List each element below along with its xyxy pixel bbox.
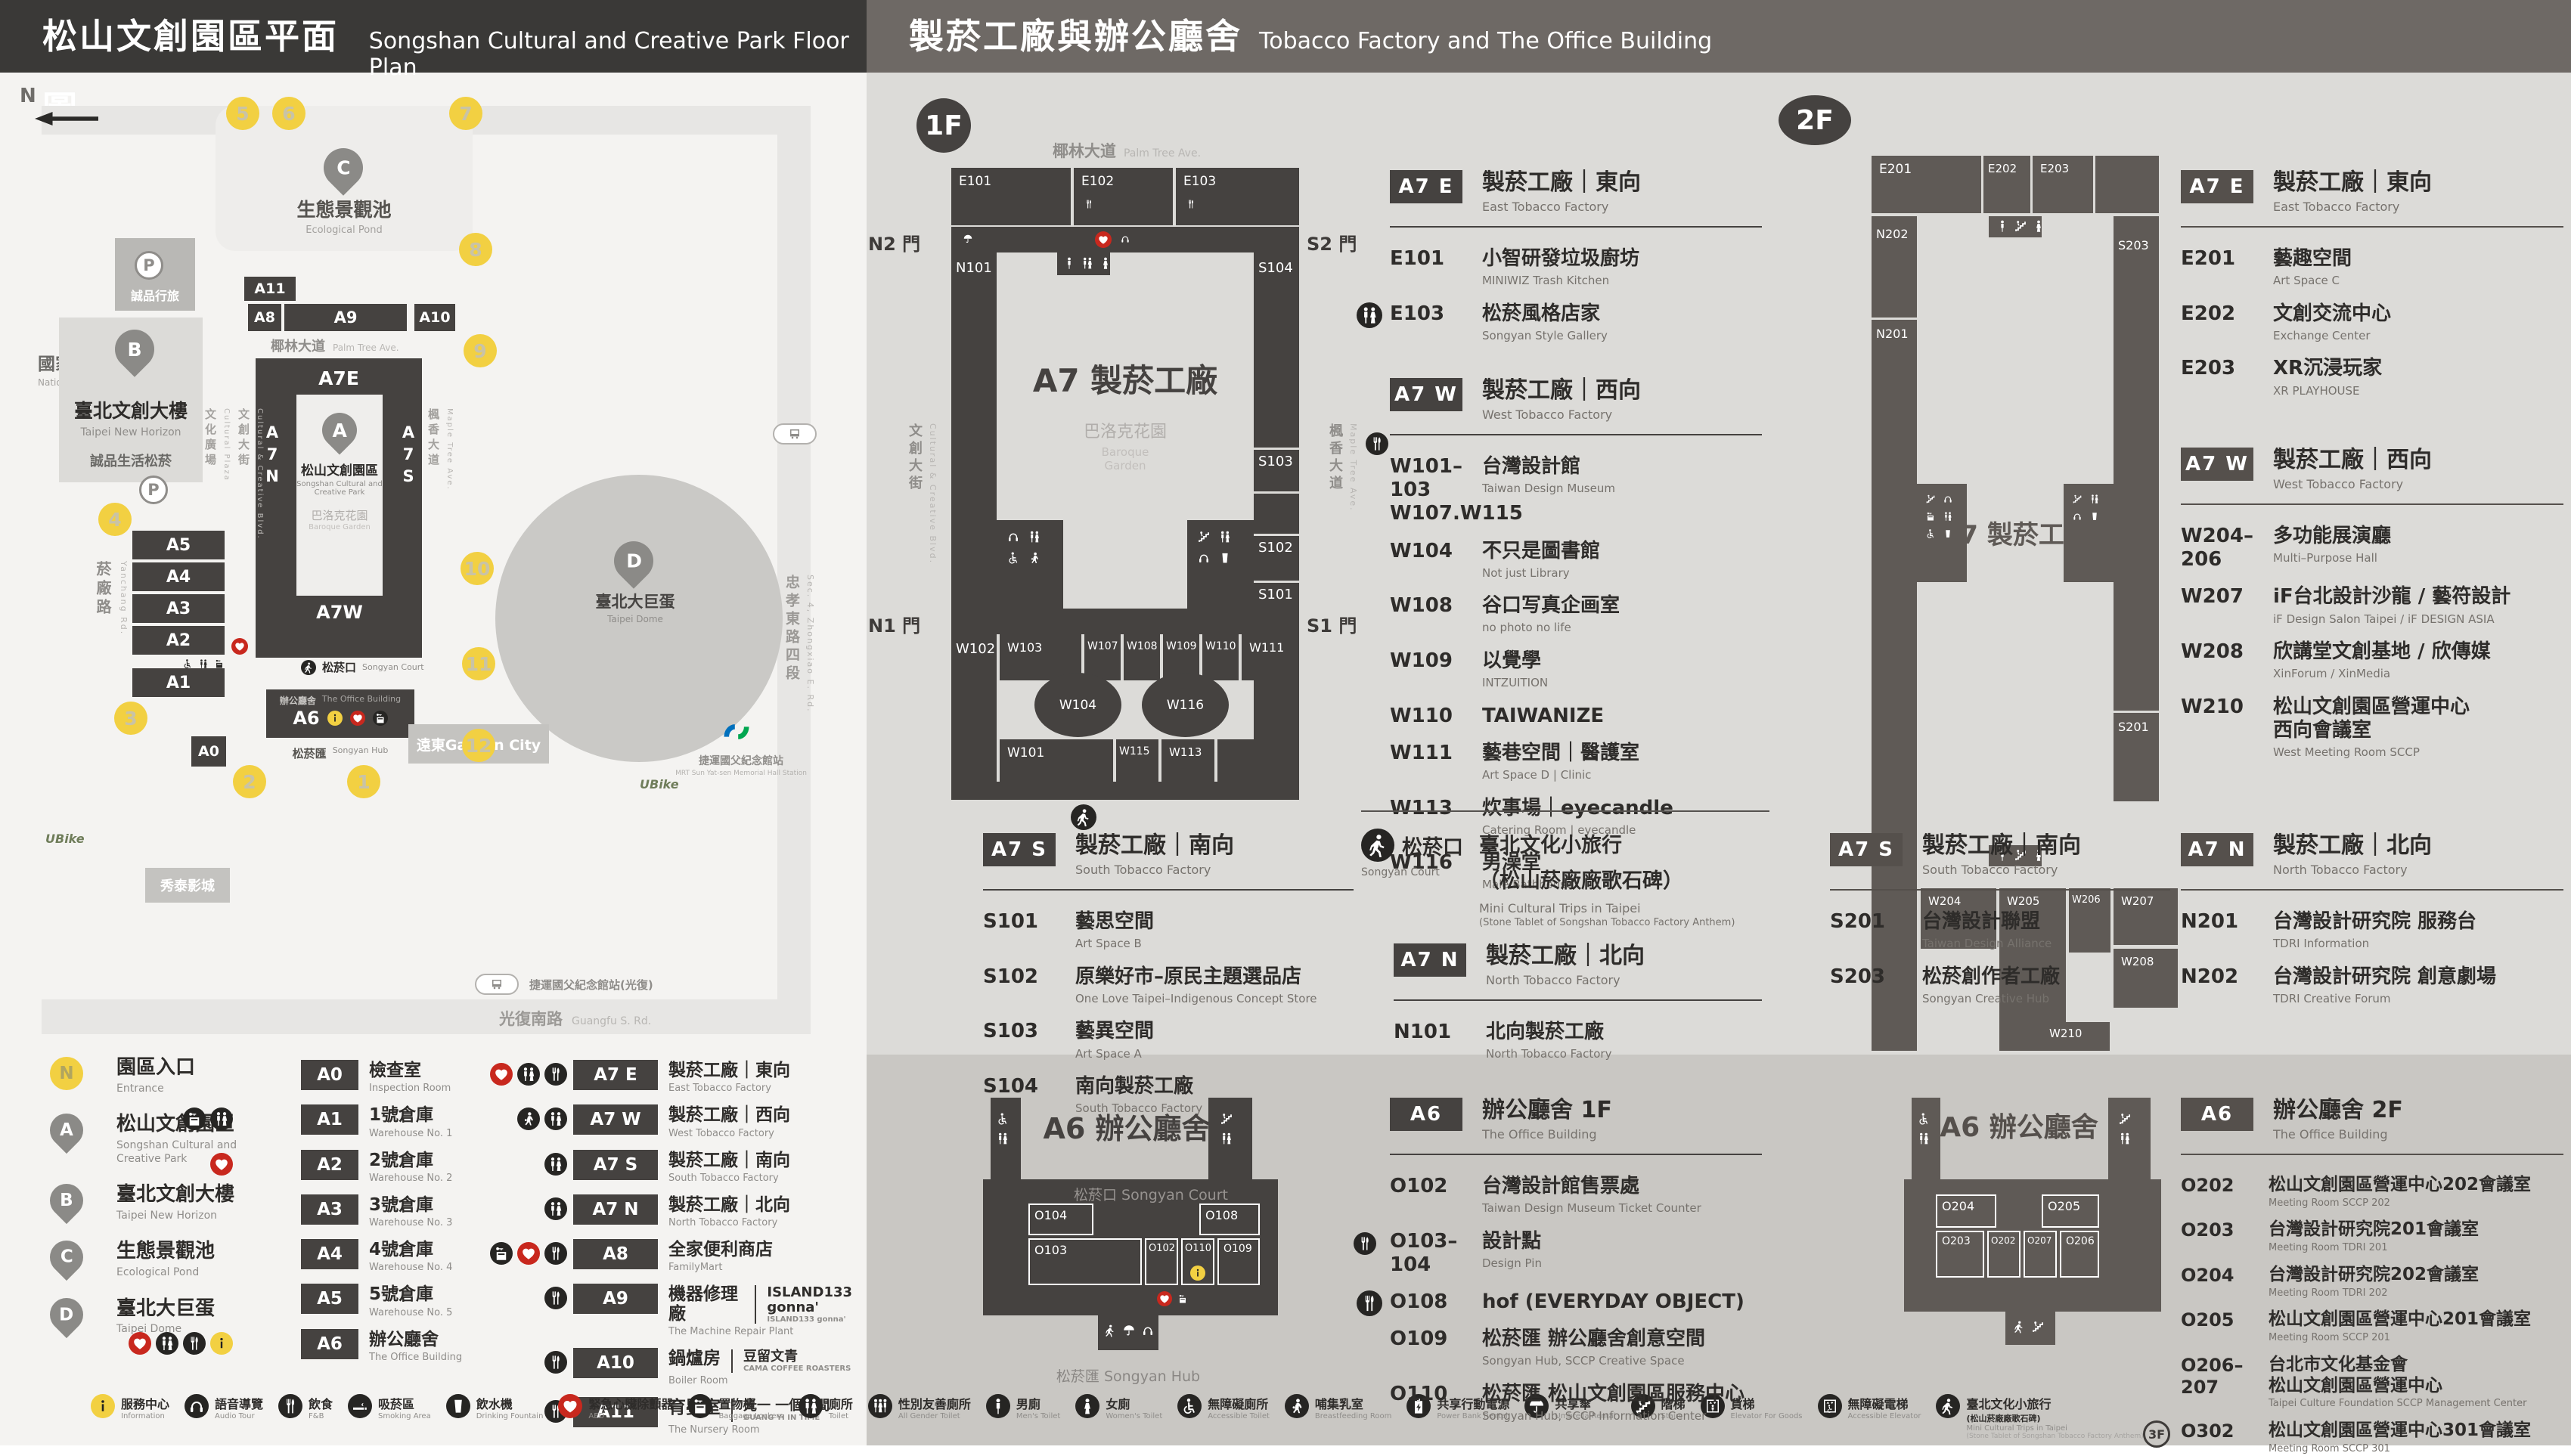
gate-s1: S1 門 <box>1307 611 1357 637</box>
legend-place-row: B 臺北文創大樓 Taipei New Horizon <box>50 1184 277 1222</box>
facility-legend-item: 語音導覽 Audio Tour <box>185 1394 263 1420</box>
facility-icon <box>517 1107 540 1130</box>
room-entry: S103 藝異空間Art Space A <box>983 1020 1354 1061</box>
facility-zh: 性別友善廁所 <box>898 1394 971 1412</box>
legend-building-row: A10 鍋爐房 豆留文青 CAMA COFFEE ROASTERS Boiler… <box>573 1348 891 1386</box>
room-entry: N101 北向製菸工廠North Tobacco Factory <box>1394 1021 1762 1062</box>
floor-indicator-badge: 3F <box>2143 1420 2170 1448</box>
legend-buildings-col2: A7 E 製菸工廠｜東向 East Tobacco Factory A7 W 製… <box>573 1060 891 1446</box>
parking-icon: P <box>139 476 168 504</box>
facility-en: F&B <box>309 1412 333 1420</box>
room-entry: W104 不只是圖書館Not just Library <box>1390 540 1762 581</box>
building-extra: 豆留文青 CAMA COFFEE ROASTERS <box>731 1349 851 1373</box>
entrance-marker: 10 <box>461 552 494 585</box>
section-1f-a7s: A7 S 製菸工廠｜南向South Tobacco Factory S101 藝… <box>983 833 1354 1117</box>
plan-room: N101 <box>956 260 992 276</box>
plan-room: N201 <box>1876 327 1909 341</box>
section-2f-a7e: A7 E 製菸工廠｜東向East Tobacco Factory E201 藝趣… <box>2181 170 2563 398</box>
bottom-road <box>42 999 811 1034</box>
facility-en: Women's Toilet <box>1106 1412 1162 1420</box>
plan-wing-east <box>1254 252 1299 782</box>
building-zh: 製菸工廠｜南向 <box>668 1151 790 1170</box>
walk-icon <box>1361 829 1394 862</box>
plan-wing-east-2f <box>2114 216 2159 801</box>
building-code-badge: A7 S <box>573 1150 658 1180</box>
facility-zh: 吸菸區 <box>378 1394 431 1412</box>
entrance-marker: 9 <box>464 334 497 367</box>
facility-zh: 無障礙電梯 <box>1848 1394 1921 1412</box>
room-entry: O103–104 設計點Design Pin <box>1390 1230 1762 1277</box>
fnb-icon <box>1366 432 1388 455</box>
facility-zh: 飲食 <box>309 1394 333 1412</box>
facility-en: Mini Cultural Trips in Taipei <box>1966 1424 2143 1433</box>
plan-room: S104 <box>1258 260 1293 276</box>
legend-building-row: A7 N 製菸工廠｜北向 North Tobacco Factory <box>573 1194 891 1228</box>
legend-place-row: N 園區入口 Entrance <box>50 1057 277 1095</box>
building-zh: 鍋爐房 <box>668 1349 721 1368</box>
room-entry: 3F O302 松山文創園區營運中心301會議室Meeting Room SCC… <box>2181 1420 2563 1455</box>
map-label-a7w: A7W <box>296 602 383 623</box>
legend-building-row: A3 3號倉庫 Warehouse No. 3 <box>301 1194 528 1228</box>
facility-legend-item: 無障礙電梯 Accessible Elevator <box>1818 1394 1921 1420</box>
zhongxiao-rd-label: 忠孝東路四段 Sec. 4, Zhongxiao E. Rd. <box>782 575 957 713</box>
place-marker-icon: A <box>43 1107 90 1154</box>
facility-icon <box>1357 1290 1382 1316</box>
plan-room: O104 <box>1028 1204 1093 1235</box>
a6-hub-label: 松菸匯 Songyan Hub <box>1053 1365 1204 1386</box>
compass-n-label: N <box>20 85 36 107</box>
legend-place-row: C 生態景觀池 Ecological Pond <box>50 1241 277 1279</box>
building-zh: 辦公廳舍 <box>369 1331 439 1349</box>
facility-legend-item: 廁所 Toilet <box>799 1394 853 1420</box>
legend-building-row: A7 W 製菸工廠｜西向 West Tobacco Factory <box>573 1104 891 1138</box>
building-extra: ISLAND133 gonna' ISLAND133 gonna' <box>755 1285 891 1324</box>
facility-en: Audio Tour <box>215 1412 263 1420</box>
room-entry: S203 松菸創作者工廠Songyan Creative Hub <box>1830 965 2170 1007</box>
room-entry: O110 松菸匯 松山文創園區服務中心Songyan Hub, SCCP Inf… <box>1390 1383 1762 1424</box>
facility-icon <box>1285 1394 1309 1418</box>
facility-icon <box>1936 1394 1960 1418</box>
facility-icon <box>517 1242 540 1265</box>
left-header: 松山文創園區平面圖 Songshan Cultural and Creative… <box>0 0 867 73</box>
room-entry: O108 hof (EVERYDAY OBJECT) <box>1390 1290 1762 1314</box>
entrance-marker: 4 <box>98 503 132 536</box>
facility-icon <box>544 1351 567 1374</box>
taipei-new-horizon-label: 臺北文創大樓 Taipei New Horizon 誠品生活松菸 <box>63 396 199 470</box>
legend-place-row: A 松山文創園區 Songshan Cultural and Creative … <box>50 1114 277 1166</box>
cc-blvd-plan-label: 文創大街 Cultural & Creative Blvd. <box>904 423 1026 564</box>
section-badge: A7 E <box>1390 170 1462 203</box>
building-en: Warehouse No. 1 <box>369 1128 452 1139</box>
aed-icon <box>1157 1291 1172 1306</box>
room-entry: S102 原樂好市–原民主題選品店One Love Taipei–Indigen… <box>983 965 1354 1007</box>
building-en: Boiler Room <box>668 1375 851 1386</box>
plan-room: O203 <box>1936 1231 1984 1278</box>
room-entry: W111 藝巷空間｜醫護室Art Space D | Clinic <box>1390 742 1762 783</box>
section-1f-a7n: A7 N 製菸工廠｜北向North Tobacco Factory N101 北… <box>1394 943 1762 1062</box>
plan-room: N202 <box>1876 227 1909 241</box>
map-a6-row: A6 <box>266 708 414 729</box>
building-code-badge: A10 <box>573 1348 658 1378</box>
eslite-hotel-label: 誠品行旅 <box>121 286 189 304</box>
building-zh: 製菸工廠｜東向 <box>668 1061 790 1080</box>
a6-court-label: 松菸口 Songyan Court <box>1074 1184 1228 1204</box>
plan-room: O207 <box>2024 1231 2057 1278</box>
building-code-badge: A5 <box>301 1284 358 1314</box>
room-entry: N201 台灣設計研究院 服務台TDRI Information <box>2181 910 2563 952</box>
building-code-badge: A9 <box>573 1284 658 1314</box>
facility-zh: 哺集乳室 <box>1315 1394 1391 1412</box>
plan-room: E201 <box>1872 156 1981 213</box>
facility-icon <box>210 1107 233 1130</box>
gate-n2: N2 門 <box>868 229 920 256</box>
walk-icon <box>301 660 316 675</box>
facility-zh: 無障礙廁所 <box>1208 1394 1270 1412</box>
room-entry: E202 文創交流中心Exchange Center <box>2181 302 2563 344</box>
building-zh: 製菸工廠｜西向 <box>668 1106 790 1125</box>
facility-icon <box>91 1394 115 1418</box>
facility-zh: 廁所 <box>829 1394 853 1412</box>
bus-stop-label: 捷運國父紀念館站(光復) <box>529 977 653 993</box>
legend-building-row: A7 S 製菸工廠｜南向 South Tobacco Factory <box>573 1150 891 1184</box>
room-entry: W207 iF台北設計沙龍 / 藝符設計iF Design Salon Taip… <box>2181 585 2563 627</box>
building-code-badge: A4 <box>301 1239 358 1269</box>
building-zh: 5號倉庫 <box>369 1285 433 1304</box>
facility-icon <box>544 1287 567 1309</box>
bus-stop-icon <box>773 423 817 445</box>
ubike-logo: UBike <box>640 777 679 792</box>
plan-room: E103 <box>1176 168 1299 225</box>
plan-room: W104 <box>1034 673 1121 737</box>
legend-building-row: A5 5號倉庫 Warehouse No. 5 <box>301 1284 528 1318</box>
building-code-badge: A1 <box>301 1104 358 1135</box>
entrance-marker: 5 <box>226 97 259 130</box>
map-label-a7e: A7E <box>256 367 422 389</box>
facility-icon <box>348 1394 372 1418</box>
facility-legend-item: 飲水機 Drinking Fountain <box>446 1394 544 1420</box>
facility-icon <box>210 1153 233 1176</box>
facility-icon <box>986 1394 1010 1418</box>
ubike-logo: UBike <box>45 832 85 846</box>
building-zh: 全家便利商店 <box>668 1241 773 1259</box>
palm-ave-map-label: 椰林大道 Palm Tree Ave. <box>271 336 399 355</box>
place-zh: 園區入口 <box>116 1057 195 1080</box>
map-songyan-court: 松菸口 Songyan Court <box>301 659 424 675</box>
section-2f-a6: A6 辦公廳舍 2FThe Office Building O202 松山文創園… <box>2181 1098 2563 1456</box>
place-en: Entrance <box>116 1082 195 1095</box>
bus-stop-icon <box>475 974 519 995</box>
plan-room: S101 <box>1258 587 1293 603</box>
legend-buildings-col1: A0 檢查室 Inspection Room A1 1號倉庫 Warehouse… <box>301 1060 528 1374</box>
plan-room: O205 <box>2042 1194 2099 1228</box>
building-code-badge: A3 <box>301 1194 358 1225</box>
parking-icon: P <box>135 251 163 280</box>
building-code-badge: A7 N <box>573 1194 658 1225</box>
map-office-label: 辦公廳舍 The Office Building <box>266 694 414 707</box>
right-title-zh: 製菸工廠與辦公廳舍 <box>909 0 1242 73</box>
building-zh: 1號倉庫 <box>369 1106 433 1125</box>
info-icon <box>1190 1265 1205 1281</box>
room-entry: W208 欣講堂文創基地 / 欣傳媒XinForum / XinMedia <box>2181 640 2563 682</box>
entrance-marker: 7 <box>449 97 482 130</box>
facility-zh: 飲水機 <box>476 1394 544 1412</box>
facility-icon <box>278 1394 302 1418</box>
facility-icon <box>490 1242 513 1265</box>
building-en: North Tobacco Factory <box>668 1217 790 1228</box>
legend-building-row: A1 1號倉庫 Warehouse No. 1 <box>301 1104 528 1138</box>
building-zh: 機器修理廠 <box>668 1285 744 1324</box>
plan-room: E203 <box>2033 156 2093 213</box>
plan-room: O109 <box>1217 1238 1260 1285</box>
facility-legend-item: 吸菸區 Smoking Area <box>348 1394 431 1420</box>
building-code-badge: A6 <box>301 1329 358 1359</box>
facility-icon <box>446 1394 470 1418</box>
building-en: The Office Building <box>369 1352 462 1363</box>
building-en: West Tobacco Factory <box>668 1128 790 1139</box>
place-zh: 臺北文創大樓 <box>116 1184 234 1207</box>
legend-places: N 園區入口 Entrance A 松山文創園區 Songshan Cultur… <box>50 1057 277 1355</box>
legend-building-row: A9 機器修理廠 ISLAND133 gonna' ISLAND133 gonn… <box>573 1284 891 1337</box>
plan-room: E202 <box>1983 156 2030 213</box>
plan-corridor-south <box>951 609 1299 634</box>
plan-room: W110 <box>1202 634 1239 680</box>
building-code-badge: A2 <box>301 1150 358 1180</box>
guangfu-rd-label: 光復南路 Guangfu S. Rd. <box>499 1007 651 1030</box>
room-entry: W109 以覺學INTZUITION <box>1390 649 1762 691</box>
facility-en: Accessible Toilet <box>1208 1412 1270 1420</box>
room-entry: W101–103W107.W115 台灣設計館Taiwan Design Mus… <box>1390 455 1762 526</box>
facility-icon <box>1075 1394 1099 1418</box>
plan-room: W113 <box>1161 739 1214 782</box>
facility-icon <box>156 1332 178 1355</box>
facility-icon <box>558 1394 582 1418</box>
plan-room: O206 <box>2060 1231 2099 1278</box>
room-entry: O202 松山文創園區營運中心202會議室Meeting Room SCCP 2… <box>2181 1175 2563 1210</box>
room-entry: W110 TAIWANIZE <box>1390 705 1762 728</box>
map-label-a6: A6 <box>293 708 319 729</box>
right-title-en: Tobacco Factory and The Office Building <box>1259 28 1712 54</box>
facility-zh: 緊急心臟除顫器 <box>588 1394 673 1412</box>
place-zh: 臺北大巨蛋 <box>116 1298 215 1321</box>
building-zh: 製菸工廠｜北向 <box>668 1196 790 1215</box>
plan-room: O204 <box>1936 1194 1996 1228</box>
building-zh: 2號倉庫 <box>369 1151 433 1170</box>
floor-badge-2f: 2F <box>1779 95 1851 145</box>
place-marker-icon: N <box>50 1057 83 1090</box>
room-entry: W210 松山文創園區營運中心西向會議室West Meeting Room SC… <box>2181 695 2563 761</box>
left-title-en: Songshan Cultural and Creative Park Floo… <box>369 28 867 81</box>
room-entry: O203 台灣設計研究院201會議室Meeting Room TDRI 201 <box>2181 1219 2563 1254</box>
legend-building-row: A7 E 製菸工廠｜東向 East Tobacco Factory <box>573 1060 891 1094</box>
facility-legend-item: 置物櫃 Baggage Lockers <box>688 1394 783 1420</box>
facility-icon <box>544 1242 567 1265</box>
legend-place-row: D 臺北大巨蛋 Taipei Dome <box>50 1298 277 1337</box>
facility-legend-item: 無障礙廁所 Accessible Toilet <box>1177 1394 1270 1420</box>
facility-icon <box>490 1063 513 1086</box>
palm-ave-plan-label: 椰林大道 Palm Tree Ave. <box>1006 139 1248 162</box>
entrance-marker: 1 <box>347 765 380 798</box>
facility-en: Smoking Area <box>378 1412 431 1420</box>
facility-zh: 女廁 <box>1106 1394 1162 1412</box>
walk-icon <box>1071 804 1096 830</box>
section-1f-songyan-court: 松菸口 Songyan Court 臺北文化小旅行 （松山菸廠廠歌石碑） Min… <box>1361 810 1769 928</box>
plan-room: O108 <box>1199 1204 1260 1235</box>
building-en: Warehouse No. 4 <box>369 1262 452 1273</box>
facility-icon <box>688 1394 712 1418</box>
map-label-a7s: A7S <box>399 423 417 489</box>
facility-legend-item: 哺集乳室 Breastfeeding Room <box>1285 1394 1391 1420</box>
legend-building-row: A2 2號倉庫 Warehouse No. 2 <box>301 1150 528 1184</box>
facility-en: Breastfeeding Room <box>1315 1412 1391 1420</box>
facility-zh: 置物櫃 <box>718 1394 783 1412</box>
facility-zh: 語音導覽 <box>215 1394 263 1412</box>
plan-room: W115 <box>1116 739 1158 782</box>
facility-en: Toilet <box>829 1412 853 1420</box>
maple-ave-label: 楓香大道 Maple Tree Ave. <box>426 408 518 491</box>
facility-en: Information <box>121 1412 169 1420</box>
map-block-a1: A1 <box>132 668 225 697</box>
facility-zh: 男廁 <box>1016 1394 1060 1412</box>
room-entry: W108 谷口写真企画室no photo no life <box>1390 594 1762 636</box>
facility-icon <box>517 1063 540 1086</box>
plan-room: S203 <box>2118 238 2149 252</box>
facility-legend-item: 臺北文化小旅行 (松山菸廠廠歌石碑) Mini Cultural Trips i… <box>1936 1394 2143 1440</box>
facility-legend-item: 性別友善廁所 All Gender Toilet <box>868 1394 971 1420</box>
facility-icon <box>544 1197 567 1220</box>
plan-room: E101 <box>951 168 1071 225</box>
room-entry: S101 藝思空間Art Space B <box>983 910 1354 952</box>
place-zh: 生態景觀池 <box>116 1241 215 1263</box>
floor-plan-poster: 松山文創園區平面圖 Songshan Cultural and Creative… <box>0 0 2571 1445</box>
facility-legend-item: 服務中心 Information <box>91 1394 169 1420</box>
place-en: Ecological Pond <box>116 1265 215 1279</box>
building-en: Warehouse No. 3 <box>369 1217 452 1228</box>
ecological-pond-label: 生態景觀池 Ecological Pond <box>268 195 420 236</box>
mrt-station-label: 捷運國父紀念館站 MRT Sun Yat-sen Memorial Hall S… <box>673 753 809 777</box>
building-zh: 3號倉庫 <box>369 1196 433 1215</box>
facility-en: Drinking Fountain <box>476 1412 544 1420</box>
building-zh: 4號倉庫 <box>369 1241 433 1259</box>
room-entry: E201 藝趣空間Art Space C <box>2181 247 2563 289</box>
plan-center-label: A7 製菸工廠 巴洛克花園 Baroque Garden <box>1012 355 1239 472</box>
facility-icon <box>868 1394 892 1418</box>
room-entry: S201 台灣設計聯盟Taiwan Design Alliance <box>1830 910 2170 952</box>
room-entry: O109 松菸匯 辦公廳舍創意空間Songyan Hub, SCCP Creat… <box>1390 1327 1762 1369</box>
plan-room: O102 <box>1145 1238 1178 1285</box>
room-entry: O102 台灣設計館售票處Taiwan Design Museum Ticket… <box>1390 1175 1762 1216</box>
facility-icon <box>210 1332 233 1355</box>
map-block-a0: A0 <box>191 736 226 767</box>
facility-icon <box>1818 1394 1842 1418</box>
room-entry: O206–207 台北市文化基金會松山文創園區營運中心Taipei Cultur… <box>2181 1355 2563 1411</box>
entrance-marker: 2 <box>233 765 266 798</box>
right-header: 製菸工廠與辦公廳舍 Tobacco Factory and The Office… <box>867 0 2571 73</box>
plan-room: S102 <box>1258 540 1293 556</box>
facility-zh: 臺北文化小旅行 <box>1966 1394 2143 1412</box>
plan-room: S201 <box>2118 720 2149 734</box>
place-marker-icon: D <box>43 1290 90 1337</box>
fnb-icon <box>1354 1232 1376 1255</box>
entrance-marker: 6 <box>272 97 305 130</box>
aed-icon <box>231 638 248 655</box>
facility-icon <box>799 1394 823 1418</box>
room-entry: E203 XR沉浸玩家XR PLAYHOUSE <box>2181 357 2563 398</box>
facility-icon <box>183 1107 206 1130</box>
entrance-marker: 3 <box>114 702 147 735</box>
yanchang-rd-label: 菸廠路 Yanchang Rd. <box>92 561 182 635</box>
map-block-a8: A8 <box>248 304 281 331</box>
place-marker-icon: C <box>43 1234 90 1281</box>
plan-room: W116 <box>1142 673 1229 737</box>
entrance-marker: 8 <box>459 233 492 266</box>
room-entry: W204–206 多功能展演廳Multi–Purpose Hall <box>2181 525 2563 572</box>
cinema-label: 秀泰影城 <box>145 868 230 903</box>
facility-legend-item: 女廁 Women's Toilet <box>1075 1394 1162 1420</box>
right-road <box>777 106 811 1034</box>
section-2f-a7w: A7 W 製菸工廠｜西向West Tobacco Factory W204–20… <box>2181 448 2563 761</box>
map-block-a9: A9 <box>284 304 407 331</box>
facility-icon <box>185 1394 209 1418</box>
facility-icon <box>1177 1394 1202 1418</box>
aed-icon <box>350 711 365 726</box>
legend-building-row: A6 辦公廳舍 The Office Building <box>301 1329 528 1363</box>
map-block-a10: A10 <box>414 304 455 331</box>
building-code-badge: A0 <box>301 1060 358 1090</box>
building-en: Inspection Room <box>369 1083 451 1094</box>
room-entry: E103 松菸風格店家Songyan Style Gallery <box>1390 302 1762 344</box>
taipei-dome-label: 臺北大巨蛋 Taipei Dome <box>563 590 707 624</box>
facility-en: Men's Toilet <box>1016 1412 1060 1420</box>
plan-room: S103 <box>1258 454 1293 469</box>
facility-icon <box>1357 302 1382 328</box>
building-en: Warehouse No. 2 <box>369 1173 452 1184</box>
facility-en: AED <box>588 1412 673 1420</box>
building-code-badge: A7 E <box>573 1060 658 1090</box>
building-en: FamilyMart <box>668 1262 773 1273</box>
facility-legend-item: 緊急心臟除顫器 AED <box>558 1394 673 1420</box>
locker-icon <box>373 711 388 726</box>
building-zh: 檢查室 <box>369 1061 421 1080</box>
map-block-a11: A11 <box>244 277 296 301</box>
entrance-marker: 11 <box>462 647 495 680</box>
plan-room: E102 <box>1074 168 1173 225</box>
floor-badge-1f: 1F <box>916 98 971 153</box>
place-en: Taipei New Horizon <box>116 1209 234 1222</box>
plan-room: W108 <box>1124 634 1160 680</box>
facility-icon <box>544 1153 567 1176</box>
map-songyan-hub: 松菸匯 Songyan Hub <box>266 745 414 761</box>
entrance-marker: 12 <box>462 729 495 762</box>
room-entry: E101 小智研發垃圾廚坊MINIWIZ Trash Kitchen <box>1390 247 1762 289</box>
map-block-a5: A5 <box>132 531 225 559</box>
facility-en: All Gender Toilet <box>898 1412 971 1420</box>
facility-legend-item: 男廁 Men's Toilet <box>986 1394 1060 1420</box>
facility-icon <box>544 1107 567 1130</box>
facility-zh: 服務中心 <box>121 1394 169 1412</box>
plan-room: W210 <box>2042 1022 2110 1051</box>
gate-n1: N1 門 <box>868 611 920 637</box>
plan-room: W101 <box>1000 739 1113 782</box>
room-entry: O204 台灣設計研究院202會議室Meeting Room TDRI 202 <box>2181 1265 2563 1300</box>
building-code-badge: A7 W <box>573 1104 658 1135</box>
place-marker-icon: B <box>43 1177 90 1224</box>
building-en: South Tobacco Factory <box>668 1173 790 1184</box>
info-icon <box>327 711 343 726</box>
section-1f-a7e: A7 E 製菸工廠｜東向East Tobacco Factory E101 小智… <box>1390 170 1762 343</box>
building-en: Warehouse No. 5 <box>369 1307 452 1318</box>
plan-room: O103 <box>1028 1238 1142 1285</box>
room-entry: N202 台灣設計研究院 創意劇場TDRI Creative Forum <box>2181 965 2563 1007</box>
